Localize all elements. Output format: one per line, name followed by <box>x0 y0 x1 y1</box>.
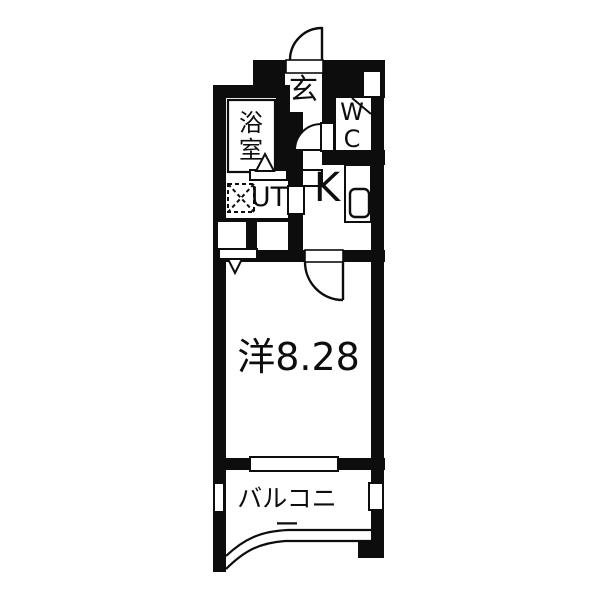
bathroom-label: 浴室 <box>238 110 264 164</box>
entrance-label: 玄 <box>285 74 322 104</box>
balcony-label: バルコニー <box>226 486 348 538</box>
pipe-shaft <box>364 72 380 96</box>
closet-door-marker-triangle <box>228 259 242 273</box>
main-room-label: 洋8.28 <box>226 338 371 378</box>
balcony-window-right <box>369 483 383 510</box>
closet-middle <box>257 222 288 250</box>
wall-segment-balcony-corner <box>358 540 384 558</box>
utility-label: UT <box>250 184 288 212</box>
balcony-window-left <box>214 483 224 512</box>
ut-kitchen-door-marker <box>288 186 304 214</box>
wall-segment-bath-right <box>276 98 290 178</box>
toilet-label: WC <box>337 99 367 153</box>
wall-segment-bath-top <box>213 85 290 98</box>
kitchen-label: K <box>305 168 349 210</box>
closet-left <box>218 222 246 250</box>
kitchen-sink-icon <box>350 189 369 217</box>
balcony-railing-outer <box>226 541 371 569</box>
main-room-window <box>250 457 338 471</box>
closet-sliding-door <box>219 249 257 259</box>
entrance-door-swing-arc <box>290 28 322 60</box>
kitchen-door-opening <box>305 250 343 262</box>
wc-door-leaf <box>321 123 334 151</box>
